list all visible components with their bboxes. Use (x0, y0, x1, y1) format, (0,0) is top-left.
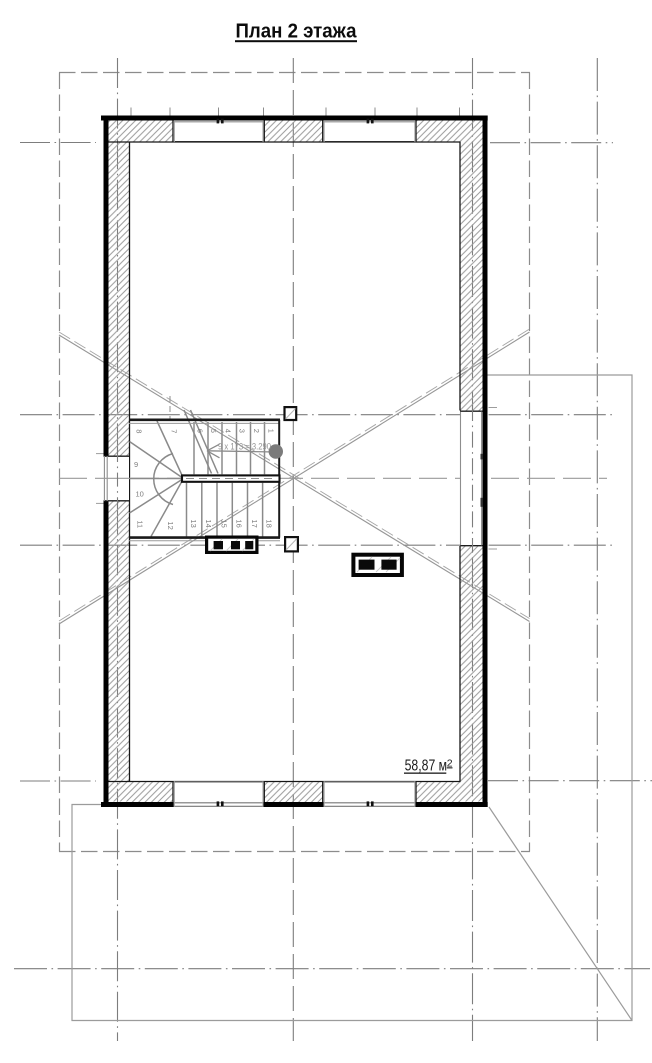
svg-text:11: 11 (136, 520, 145, 528)
svg-text:3: 3 (238, 429, 247, 433)
svg-text:18: 18 (265, 519, 274, 527)
svg-text:8: 8 (135, 429, 144, 433)
svg-text:2: 2 (252, 429, 261, 433)
svg-text:План 2 этажа: План 2 этажа (236, 19, 358, 42)
svg-text:7: 7 (170, 429, 179, 433)
svg-text:4: 4 (223, 429, 232, 433)
svg-text:9: 9 (134, 460, 138, 469)
svg-text:15: 15 (219, 519, 228, 527)
svg-text:1: 1 (267, 429, 276, 433)
svg-text:10: 10 (136, 490, 144, 499)
svg-text:58,87 м: 58,87 м (405, 758, 448, 775)
svg-text:5: 5 (209, 429, 218, 433)
svg-text:12: 12 (166, 521, 175, 529)
svg-text:16: 16 (235, 519, 244, 527)
svg-text:9 x 173 = 3.290: 9 x 173 = 3.290 (218, 442, 271, 452)
svg-text:14: 14 (204, 519, 213, 527)
svg-text:13: 13 (189, 519, 198, 527)
svg-text:6: 6 (195, 429, 204, 433)
svg-text:17: 17 (250, 519, 259, 527)
